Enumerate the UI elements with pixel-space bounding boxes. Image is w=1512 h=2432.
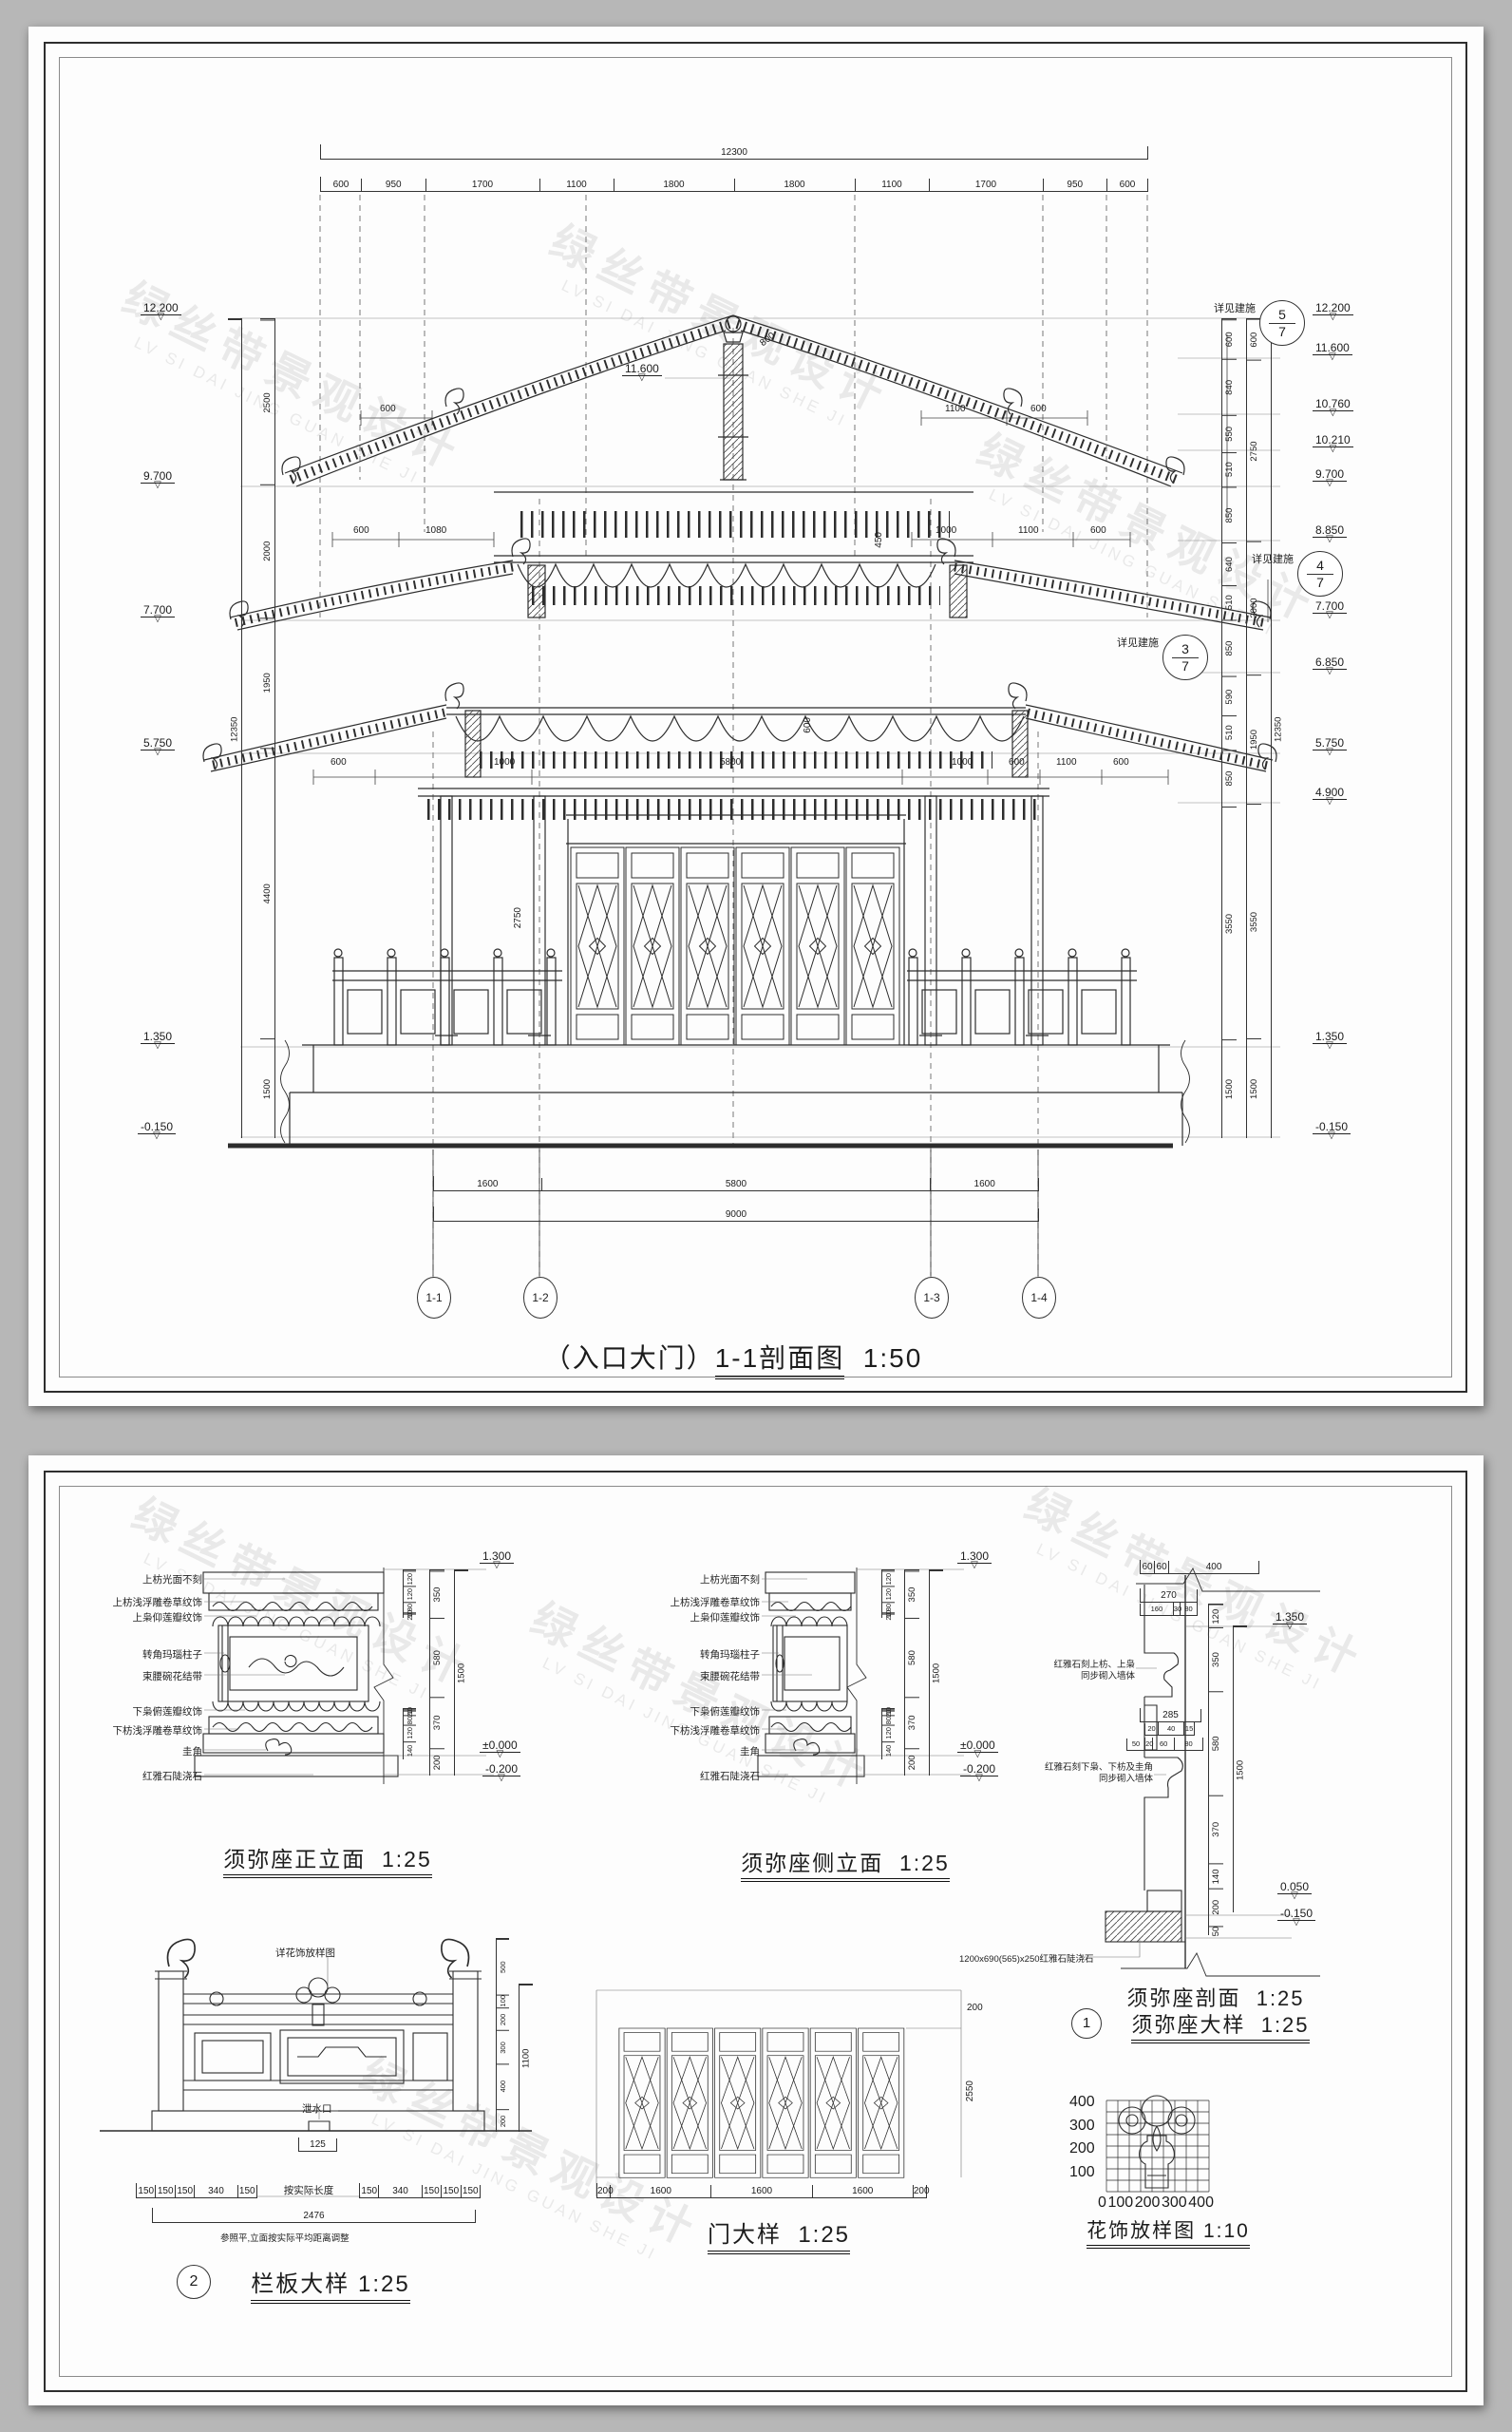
- dim-value: 80: [882, 1715, 895, 1725]
- dim-value: 1100: [856, 179, 930, 191]
- dim-value: 350: [1209, 1627, 1223, 1691]
- title-scale: 1:50: [863, 1343, 923, 1373]
- dim-value: 370: [1209, 1795, 1223, 1863]
- section-note: 同步砌入墙体: [1018, 1771, 1153, 1784]
- dim-value: 1800: [735, 179, 856, 191]
- dim-low: 5800: [720, 757, 741, 768]
- axis-tick: 0: [1098, 2194, 1106, 2208]
- dim-balustrade-vtotal: 1100: [519, 1984, 533, 2132]
- axis-tick: 400: [1188, 2194, 1214, 2208]
- dim-value: 150: [442, 2185, 461, 2197]
- dim-right-total: 12350: [1271, 318, 1285, 1138]
- dim-value: 60: [1141, 1561, 1155, 1573]
- dim-value: 150: [176, 2185, 195, 2197]
- dim-value: 510: [1222, 452, 1237, 486]
- section-title-2: 须弥座大样 1:25: [1106, 2008, 1334, 2039]
- dim-value: 1800: [614, 179, 735, 191]
- level-marker: 11.600▽: [1313, 342, 1352, 355]
- level-marker: -0.200▽: [960, 1763, 998, 1776]
- level-marker: -0.150▽: [1277, 1908, 1315, 1921]
- title-main: 1-1剖面图: [715, 1343, 844, 1379]
- dim-value: 300: [497, 2030, 509, 2064]
- dim-value: 2476: [153, 2210, 476, 2222]
- dim-value: 60: [1155, 1561, 1169, 1573]
- dim-value: 1100: [520, 1985, 533, 2132]
- dim-door-bottom: 200160016001600200: [596, 2183, 927, 2198]
- dim-bottom-chain: 160058001600: [433, 1176, 1039, 1191]
- level-marker: 4.900▽: [1313, 787, 1347, 800]
- dim-value: 60: [1153, 1738, 1175, 1750]
- level-marker: ±0.000▽: [480, 1739, 520, 1753]
- dim-value: 80: [1181, 1603, 1198, 1615]
- pedestal-label: 下枭俯莲瓣纹饰: [646, 1704, 760, 1719]
- dim-value: 20: [404, 1614, 416, 1618]
- level-marker: 7.700▽: [141, 604, 175, 617]
- dim-value: 150: [238, 2185, 257, 2197]
- dim-value: 1600: [813, 2185, 914, 2197]
- dim-value: 950: [1044, 179, 1108, 191]
- pedestal-label: 下枭俯莲瓣纹饰: [88, 1704, 202, 1719]
- detail-ref-label: 详见建施: [1252, 551, 1294, 566]
- dim-value: 1700: [426, 179, 540, 191]
- level-marker: 7.700▽: [1313, 600, 1347, 614]
- level-marker: 1.350▽: [1273, 1611, 1307, 1624]
- axis-tick: 300: [1069, 2118, 1098, 2135]
- level-marker: ±0.000▽: [957, 1739, 998, 1753]
- dim-value: 370: [905, 1697, 919, 1747]
- title-prefix: （入口大门）: [544, 1343, 715, 1373]
- dim-value: 150: [156, 2185, 175, 2197]
- dim-mid: 1080: [425, 525, 446, 536]
- dim-value: 850: [1222, 750, 1237, 806]
- dim-value: 140: [404, 1741, 416, 1759]
- dim-value: 80: [404, 1715, 416, 1725]
- dim-value: 3550: [1247, 804, 1261, 1038]
- dim-balustrade-mid: 按实际长度: [258, 2183, 359, 2197]
- dim-value: 600: [321, 179, 362, 191]
- ridge-level-marker: 11.600▽: [622, 363, 662, 376]
- dim-value: 400: [497, 2063, 509, 2108]
- flower-title: 花饰放样图 1:10: [1073, 2215, 1263, 2244]
- level-marker: 1.300▽: [957, 1550, 992, 1564]
- balustrade-title: 栏板大样 1:25: [226, 2265, 435, 2298]
- grid-bubble: 1-2: [523, 1277, 558, 1319]
- detail-bubble: 47: [1297, 551, 1343, 597]
- dim-value: 370: [430, 1697, 444, 1747]
- dim-value: 200: [905, 1748, 919, 1776]
- balustrade-ref-label: 详花饰放样图: [275, 1946, 335, 1960]
- level-marker: 1.350▽: [141, 1031, 175, 1044]
- pedestal-label: 上枭仰莲瓣纹饰: [88, 1610, 202, 1624]
- detail-ref-3-7: 详见建施37: [1117, 635, 1208, 680]
- dim-value: 200: [1209, 1889, 1223, 1926]
- dim-value: 20: [1145, 1738, 1153, 1750]
- pedestal-label: 红雅石陡浇石: [88, 1769, 202, 1783]
- dim-value: 510: [1222, 585, 1237, 619]
- front-title: 须弥座正立面 1:25: [204, 1841, 451, 1873]
- detail-number-bubble: 2: [177, 2265, 211, 2299]
- dim-value: 40: [1159, 1722, 1184, 1735]
- grid-bubble: 1-1: [417, 1277, 451, 1319]
- dim-value: 510: [1222, 715, 1237, 750]
- dim-value: 140: [882, 1741, 895, 1759]
- door-title: 门大样 1:25: [684, 2215, 874, 2249]
- level-marker: 8.850▽: [1313, 524, 1347, 538]
- dim-value: 80: [1175, 1738, 1203, 1750]
- dim-value: 120: [882, 1586, 895, 1601]
- dim-side-subbottom: 102080120140: [881, 1708, 895, 1759]
- dim-value: 9000: [434, 1208, 1039, 1221]
- section-note: 同步砌入墙体: [1030, 1668, 1135, 1681]
- level-marker: 9.700▽: [1313, 468, 1347, 482]
- dim-value: 950: [362, 179, 426, 191]
- pedestal-label: 下枋浅浮雕卷草纹饰: [646, 1723, 760, 1738]
- dim-roof: 1100: [945, 404, 966, 414]
- dim-value: 1950: [260, 617, 274, 747]
- dim-value: 2750: [1247, 360, 1261, 542]
- dim-value: 285: [1141, 1709, 1201, 1721]
- dim-value: 340: [379, 2185, 422, 2197]
- dim-value: 15: [1184, 1722, 1195, 1735]
- dim-drain: 125: [298, 2137, 337, 2152]
- dim-value: 1100: [540, 179, 614, 191]
- dim-door-height: 2550: [965, 2080, 975, 2101]
- level-marker: 5.750▽: [1313, 737, 1347, 750]
- drain-label: 泄水口: [302, 2101, 332, 2116]
- dim-value: 12350: [228, 319, 241, 1138]
- dim-value: 580: [905, 1618, 919, 1697]
- axis-tick: 200: [1069, 2140, 1098, 2157]
- dim-side-total: 1500: [929, 1569, 943, 1776]
- dim-front-subtop: 120120801020: [403, 1569, 416, 1618]
- dim-roof: 600: [380, 404, 396, 414]
- dim-value: 125: [299, 2138, 337, 2151]
- flower-x-axis: 0100200300400: [1098, 2194, 1214, 2208]
- dim-right-chain-2: 60027502000195035501500: [1246, 318, 1261, 1138]
- dim-value: 340: [195, 2185, 237, 2197]
- dim-mid: 600: [353, 525, 369, 536]
- dim-door-height: 2750: [513, 907, 523, 928]
- grid-bubble: 1-4: [1022, 1277, 1056, 1319]
- dim-left-chain: 25002000195044001500: [260, 318, 275, 1138]
- pedestal-label: 上枭仰莲瓣纹饰: [646, 1610, 760, 1624]
- dim-front-subbottom: 102080120140: [403, 1708, 416, 1759]
- dim-top-chain: 600950170011001800180011001700950600: [320, 177, 1148, 192]
- dim-value: 100: [497, 1995, 509, 2007]
- pedestal-label: 上枋光面不刻: [646, 1572, 760, 1586]
- dim-section-270: 270: [1140, 1588, 1198, 1603]
- dim-value: 580: [430, 1618, 444, 1697]
- dim-value: 120: [404, 1586, 416, 1601]
- dim-value: 350: [905, 1570, 919, 1618]
- dim-mid: 600: [1090, 525, 1106, 536]
- axis-tick: 100: [1107, 2194, 1133, 2208]
- dim-right-chain-1: 6008405505108506405108505905108503550150…: [1221, 318, 1237, 1138]
- dim-value: 1500: [1234, 1626, 1247, 1912]
- balustrade-note: 参照平,立面按实际平均距离调整: [220, 2231, 350, 2244]
- dim-value: 50: [1209, 1926, 1223, 1935]
- dim-value: 1500: [260, 1038, 274, 1138]
- level-marker: 1.300▽: [480, 1550, 514, 1564]
- dim-value: 1600: [434, 1178, 542, 1190]
- dim-value: 20: [882, 1614, 895, 1618]
- dim-value: 20: [1145, 1722, 1159, 1735]
- level-marker: 12.200▽: [141, 302, 181, 315]
- dim-value: 12350: [1272, 319, 1285, 1138]
- dim-value: 850: [1222, 619, 1237, 675]
- dim-value: 1600: [611, 2185, 711, 2197]
- dim-value: 1500: [930, 1570, 943, 1776]
- dim-balustrade-vchain: 500100200300400200: [496, 1938, 509, 2132]
- dim-front-chain: 350580370200: [429, 1569, 444, 1776]
- dim-value: 50: [1127, 1738, 1145, 1750]
- sheet1-title: （入口大门）1-1剖面图 1:50: [448, 1338, 1018, 1376]
- axis-tick: 300: [1162, 2194, 1187, 2208]
- dim-value: 140: [1209, 1863, 1223, 1889]
- level-marker: 10.210▽: [1313, 434, 1353, 447]
- axis-tick: 100: [1069, 2164, 1098, 2181]
- dim-value: 30: [1174, 1603, 1181, 1615]
- dim-value: 590: [1222, 676, 1237, 716]
- level-marker: 12.200▽: [1313, 302, 1353, 315]
- level-triangle-icon: ▽: [157, 313, 164, 322]
- dim-value: 150: [360, 2185, 379, 2197]
- dim-left-total: 12350: [228, 318, 242, 1138]
- dim-value: 2000: [260, 484, 274, 617]
- dim-value: 4400: [260, 748, 274, 1038]
- dim-value: 2500: [260, 319, 274, 484]
- dim-low: 1000: [952, 757, 973, 768]
- level-marker: 5.750▽: [141, 737, 175, 750]
- dim-side-subtop: 120120801020: [881, 1569, 895, 1618]
- dim-section-285-sub: 204015: [1144, 1723, 1195, 1736]
- dim-value: 640: [1222, 542, 1237, 585]
- dim-section-chain: 12035058037014020050: [1208, 1604, 1223, 1935]
- pedestal-label: 束腰碗花结带: [88, 1669, 202, 1683]
- dim-value: 1700: [930, 179, 1044, 191]
- dim-value: 120: [882, 1725, 895, 1741]
- dim-value: 580: [1209, 1691, 1223, 1795]
- dim-value: 200: [597, 2185, 611, 2197]
- pedestal-label: 红雅石陡浇石: [646, 1769, 760, 1783]
- dim-section-sub-bottom: 50206080: [1126, 1738, 1203, 1751]
- detail-bubble: 57: [1259, 300, 1305, 346]
- dim-door-top: 200: [967, 2003, 983, 2013]
- dim-value: 1500: [1247, 1038, 1261, 1138]
- axis-tick: 400: [1069, 2094, 1098, 2111]
- dim-value: 150: [423, 2185, 442, 2197]
- level-marker: 9.700▽: [141, 470, 175, 484]
- dim-value: 120: [404, 1725, 416, 1741]
- detail-ref-label: 详见建施: [1117, 635, 1159, 650]
- level-marker: -0.150▽: [138, 1121, 176, 1134]
- dim-low: 600: [1009, 757, 1025, 768]
- dim-roof: 600: [1030, 404, 1047, 414]
- dim-mid-vertical: 450: [874, 532, 884, 548]
- dim-value: 150: [137, 2185, 156, 2197]
- dim-low: 600: [331, 757, 347, 768]
- dim-value: 840: [1222, 359, 1237, 415]
- dim-low: 600: [1113, 757, 1129, 768]
- dim-value: 1600: [931, 1178, 1039, 1190]
- dim-balustrade-total: 2476: [152, 2208, 476, 2223]
- pedestal-label: 转角玛瑙柱子: [646, 1647, 760, 1662]
- detail-number-bubble: 1: [1071, 2008, 1102, 2039]
- pedestal-label: 束腰碗花结带: [646, 1669, 760, 1683]
- dim-bottom-total: 9000: [433, 1206, 1039, 1222]
- dim-low: 1000: [494, 757, 515, 768]
- dim-value: 600: [1107, 179, 1148, 191]
- dim-value: 400: [1169, 1561, 1259, 1573]
- pedestal-label: 上枋浅浮雕卷草纹饰: [88, 1595, 202, 1609]
- dim-value: 1500: [455, 1570, 468, 1776]
- dim-value: 1500: [1222, 1039, 1237, 1138]
- dim-section-270-sub: 1603080: [1140, 1604, 1198, 1616]
- detail-ref-5-7: 详见建施57: [1214, 300, 1305, 346]
- level-marker: 10.760▽: [1313, 398, 1353, 411]
- dim-value: 120: [404, 1570, 416, 1586]
- detail-ref-label: 详见建施: [1214, 300, 1256, 315]
- side-title: 须弥座侧立面 1:25: [717, 1845, 973, 1877]
- dim-value: 120: [1209, 1605, 1223, 1627]
- axis-tick: 200: [1135, 2194, 1161, 2208]
- pedestal-label: 下枋浅浮雕卷草纹饰: [88, 1723, 202, 1738]
- dim-value: 1950: [1247, 674, 1261, 804]
- dim-balustrade-right: 150340150150150: [359, 2183, 481, 2198]
- dim-front-total: 1500: [454, 1569, 468, 1776]
- grid-bubble: 1-3: [915, 1277, 949, 1319]
- page: 绿丝带景观设计LV SI DAI JING GUAN SHE JI 绿丝带景观设…: [0, 0, 1512, 2432]
- dim-value: 5800: [542, 1178, 932, 1190]
- dim-section-top: 6060400: [1140, 1560, 1259, 1574]
- dim-value: 550: [1222, 415, 1237, 452]
- dim-value: 160: [1141, 1603, 1174, 1615]
- pedestal-label: 圭角: [646, 1744, 760, 1758]
- dim-value: 500: [497, 1939, 509, 1995]
- flower-y-axis: 400300200100: [1069, 2094, 1098, 2181]
- dim-section-total: 1500: [1233, 1625, 1247, 1912]
- level-marker: -0.200▽: [482, 1763, 520, 1776]
- dim-value: 200: [497, 2007, 509, 2030]
- dim-low-vertical: 600: [803, 717, 813, 733]
- dim-side-chain: 350580370200: [904, 1569, 919, 1776]
- dim-balustrade-left: 150150150340150: [136, 2183, 257, 2198]
- dim-mid: 1000: [936, 525, 956, 536]
- dim-value: 200: [914, 2185, 927, 2197]
- dim-value: 850: [1222, 486, 1237, 542]
- level-marker: 0.050▽: [1277, 1881, 1312, 1894]
- detail-ref-4-7: 详见建施47: [1252, 551, 1343, 597]
- level-marker: 1.350▽: [1313, 1031, 1347, 1044]
- level-marker: 6.850▽: [1313, 656, 1347, 670]
- pedestal-label: 转角玛瑙柱子: [88, 1647, 202, 1662]
- pedestal-label: 上枋浅浮雕卷草纹饰: [646, 1595, 760, 1609]
- detail-bubble: 37: [1162, 635, 1208, 680]
- dim-section-285: 285: [1140, 1708, 1201, 1722]
- dim-low: 1100: [1056, 757, 1077, 768]
- dim-mid: 1100: [1018, 525, 1039, 536]
- dim-value: 120: [882, 1570, 895, 1586]
- pedestal-label: 上枋光面不刻: [88, 1572, 202, 1586]
- dim-value: 350: [430, 1570, 444, 1618]
- pedestal-label: 圭角: [88, 1744, 202, 1758]
- dim-value: 3550: [1222, 807, 1237, 1039]
- level-marker: -0.150▽: [1313, 1121, 1351, 1134]
- dim-value: 270: [1141, 1589, 1198, 1602]
- dim-value: 12300: [321, 146, 1148, 159]
- dim-top-total: 12300: [320, 144, 1148, 160]
- dim-value: 200: [430, 1748, 444, 1776]
- dim-value: 200: [497, 2109, 509, 2132]
- section-note: 1200x690(565)x250红雅石陡浇石: [959, 1951, 1094, 1965]
- dim-value: 1600: [711, 2185, 812, 2197]
- dim-value: 150: [462, 2185, 481, 2197]
